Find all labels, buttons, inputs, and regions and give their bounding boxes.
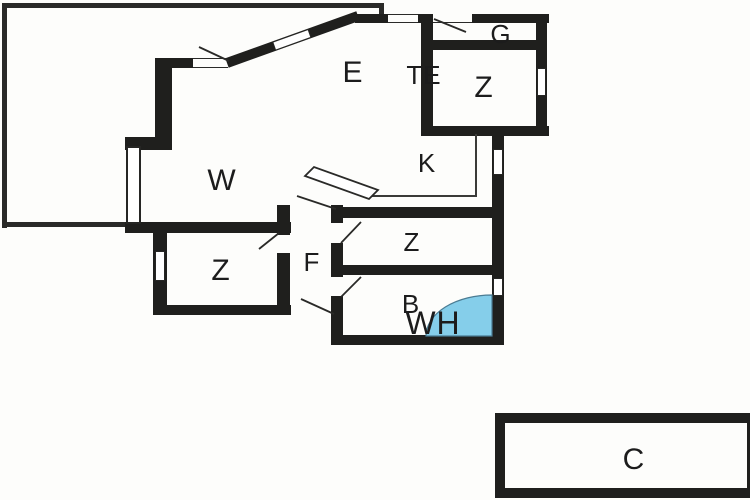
room-label-c: C bbox=[623, 445, 646, 475]
room-label-e: E bbox=[342, 58, 363, 88]
room-label-wh: WH bbox=[405, 307, 460, 339]
room-label-z-left: Z bbox=[211, 256, 230, 286]
door-leaf-g bbox=[434, 19, 466, 32]
floor-plan: W E TE G Z K Z F Z B WH C bbox=[0, 0, 750, 500]
window-diagonal bbox=[273, 30, 311, 51]
door-leaf-z-mid bbox=[341, 222, 361, 243]
room-label-te: TE bbox=[406, 62, 441, 88]
room-label-z-top: Z bbox=[474, 73, 493, 103]
door-leaf-z-left bbox=[259, 233, 279, 249]
room-label-w: W bbox=[207, 166, 236, 196]
door-leaf-top bbox=[199, 47, 229, 61]
door-leaf-entrance bbox=[301, 299, 334, 314]
door-leaf-line-hall bbox=[297, 196, 336, 209]
door-leaf-b bbox=[341, 277, 361, 297]
room-label-z-mid: Z bbox=[404, 229, 421, 255]
plan-symbols-layer bbox=[0, 0, 750, 500]
room-label-k: K bbox=[418, 150, 436, 176]
door-leaf-hall bbox=[305, 167, 378, 199]
room-label-f: F bbox=[304, 249, 321, 275]
room-label-g: G bbox=[490, 21, 511, 47]
